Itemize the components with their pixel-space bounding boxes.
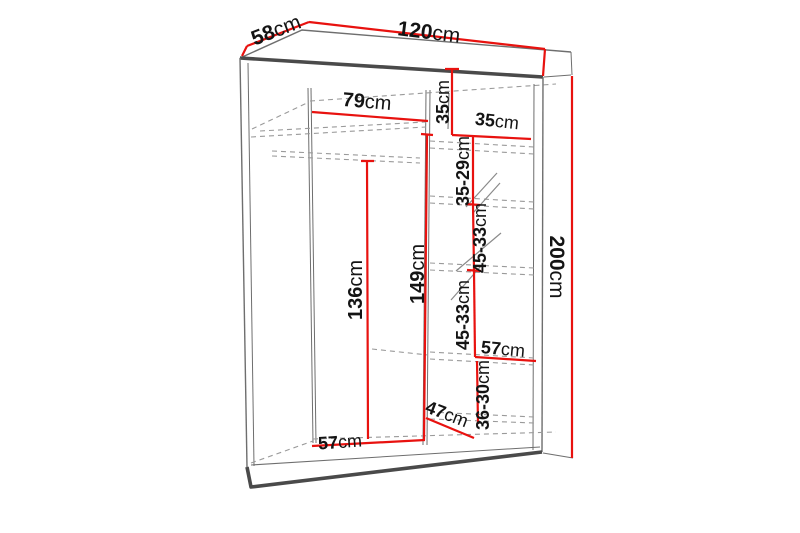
dim-line-gap3 [474, 271, 475, 357]
hidden-edges [251, 84, 556, 463]
interior-height-label: 149cm [407, 244, 429, 304]
dim-line-left-width [312, 112, 428, 121]
gap4-label: 36-30cm [473, 360, 493, 430]
dimension-lines [242, 22, 572, 458]
left-width-label: 79cm [342, 89, 393, 115]
depth-label: 58cm [248, 10, 304, 50]
floor-depth-label: 57cm [317, 430, 362, 453]
page: 58cm 120cm 200cm 79cm 35cm 35cm 35-29cm … [0, 0, 800, 533]
top-section-label: 35cm [433, 80, 453, 124]
gap2-label: 45-33cm [470, 203, 490, 273]
gap3-label: 45-33cm [453, 280, 473, 350]
right-width-label: 35cm [474, 109, 520, 133]
right-shelf-depth-label: 57cm [480, 337, 526, 361]
width-label: 120cm [396, 17, 461, 48]
hanging-height-label: 136cm [345, 260, 367, 320]
gap1-label: 35-29cm [453, 136, 473, 206]
wardrobe-diagram: 58cm 120cm 200cm 79cm 35cm 35cm 35-29cm … [0, 0, 800, 533]
height-label: 200cm [546, 235, 569, 298]
